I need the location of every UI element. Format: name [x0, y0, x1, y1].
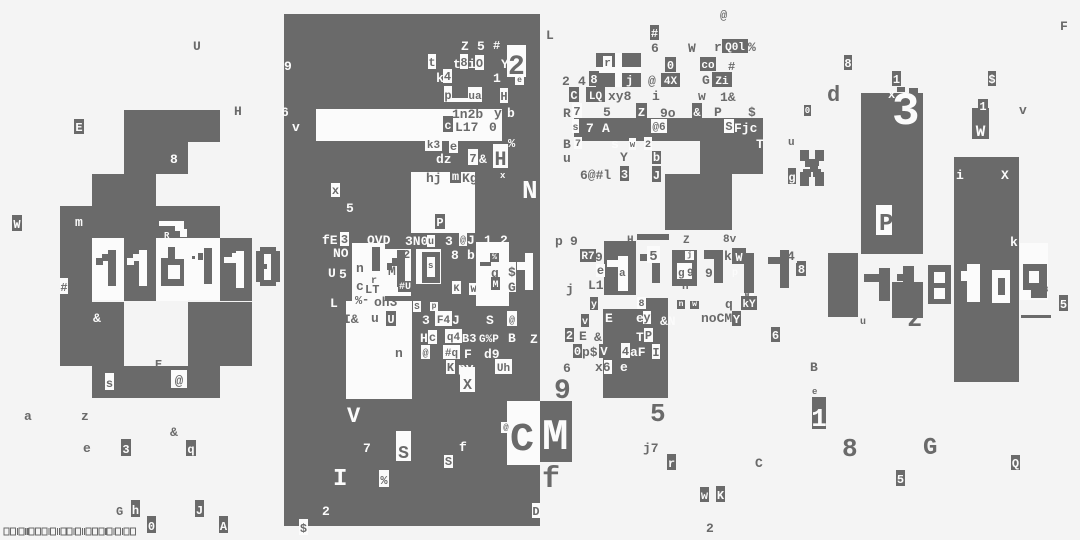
- svg-text:5: 5: [897, 473, 904, 487]
- svg-text:kY: kY: [742, 299, 756, 311]
- svg-text:W: W: [735, 251, 743, 265]
- svg-text:3: 3: [445, 234, 453, 249]
- svg-text:6: 6: [772, 329, 779, 343]
- svg-text:2: 2: [322, 504, 330, 519]
- svg-text:G: G: [923, 435, 937, 462]
- svg-text:x: x: [332, 184, 339, 198]
- svg-text:B: B: [810, 360, 818, 375]
- svg-text:E: E: [155, 358, 162, 372]
- svg-text:Z: Z: [530, 332, 538, 347]
- svg-text:Q: Q: [1012, 457, 1019, 471]
- svg-text:8: 8: [460, 56, 467, 70]
- svg-text:y: y: [494, 106, 502, 121]
- svg-text:g: g: [788, 171, 795, 185]
- svg-text:5: 5: [603, 105, 611, 120]
- svg-text:oh3: oh3: [374, 295, 398, 310]
- svg-text:&N: &N: [660, 314, 676, 329]
- svg-text:e: e: [83, 441, 91, 456]
- svg-text:2: 2: [706, 521, 714, 536]
- svg-text:7: 7: [363, 441, 371, 456]
- svg-text:d: d: [827, 83, 840, 108]
- svg-text:v: v: [1019, 103, 1027, 118]
- svg-text:T: T: [756, 137, 764, 152]
- svg-text:4X: 4X: [664, 76, 678, 88]
- svg-text:J: J: [653, 169, 660, 183]
- svg-text:X: X: [1001, 168, 1009, 183]
- svg-text:p: p: [555, 234, 563, 249]
- svg-text:A: A: [602, 121, 610, 136]
- svg-text:W: W: [976, 123, 986, 141]
- svg-text:p: p: [732, 268, 738, 279]
- svg-text:NO: NO: [333, 246, 349, 261]
- svg-text:V: V: [600, 345, 608, 359]
- svg-text:co: co: [701, 60, 715, 72]
- svg-text:0: 0: [489, 120, 497, 135]
- svg-text:8v: 8v: [723, 234, 737, 246]
- svg-text:F: F: [464, 347, 472, 362]
- svg-text:C: C: [510, 418, 534, 463]
- svg-text:1: 1: [811, 404, 827, 434]
- svg-text:U: U: [387, 313, 394, 327]
- svg-text:V: V: [347, 404, 361, 429]
- svg-text:q4: q4: [447, 332, 461, 344]
- svg-text:e: e: [620, 360, 628, 375]
- svg-text:dz: dz: [436, 152, 452, 167]
- svg-text:M: M: [492, 280, 498, 291]
- svg-text:e: e: [597, 264, 604, 278]
- svg-text:r: r: [604, 58, 611, 70]
- svg-text:H: H: [500, 90, 507, 104]
- svg-text:6@#l: 6@#l: [580, 168, 611, 183]
- svg-text:u: u: [788, 137, 795, 149]
- svg-text:q: q: [187, 443, 194, 457]
- svg-text:$: $: [508, 265, 516, 280]
- svg-text:5: 5: [1060, 298, 1067, 312]
- svg-text:z: z: [81, 409, 89, 424]
- svg-text:#: #: [60, 281, 67, 295]
- svg-text:Z: Z: [638, 106, 645, 120]
- svg-text:1: 1: [979, 100, 986, 114]
- svg-text:C: C: [570, 89, 577, 103]
- svg-text:9: 9: [595, 250, 603, 265]
- svg-text:@: @: [648, 74, 656, 89]
- svg-text:r: r: [714, 40, 722, 55]
- svg-text:O: O: [476, 57, 483, 71]
- svg-text:s: s: [428, 261, 433, 271]
- svg-text:9: 9: [570, 234, 578, 249]
- svg-text:%: %: [508, 137, 516, 151]
- svg-text:B: B: [563, 137, 571, 152]
- svg-text:u: u: [371, 311, 379, 326]
- svg-text:U: U: [328, 266, 336, 281]
- svg-text:G: G: [116, 505, 123, 519]
- svg-text:7: 7: [573, 105, 580, 119]
- svg-text:h: h: [132, 504, 139, 518]
- svg-text:#: #: [728, 60, 735, 74]
- svg-text:3: 3: [122, 443, 129, 457]
- svg-text:j: j: [687, 251, 692, 260]
- svg-text:L: L: [330, 296, 338, 311]
- svg-text:8: 8: [451, 248, 459, 263]
- svg-text:I: I: [333, 466, 347, 493]
- svg-text:s: s: [106, 377, 113, 391]
- svg-text:@6: @6: [652, 122, 665, 134]
- svg-text:w: w: [692, 300, 697, 309]
- svg-text:%: %: [492, 253, 497, 262]
- svg-text:2: 2: [562, 74, 570, 89]
- svg-text:m: m: [75, 215, 83, 230]
- svg-text:a: a: [619, 268, 626, 280]
- svg-text:1&: 1&: [720, 90, 736, 105]
- svg-text:F4: F4: [437, 315, 451, 327]
- svg-text:#q: #q: [445, 348, 458, 360]
- svg-text:v: v: [292, 120, 300, 135]
- svg-text:8: 8: [590, 73, 597, 87]
- svg-text:n: n: [679, 300, 684, 309]
- svg-text:A: A: [220, 520, 228, 534]
- svg-text:2: 2: [566, 329, 573, 343]
- svg-text:x: x: [500, 171, 506, 181]
- svg-text:E: E: [75, 121, 82, 135]
- svg-text:H: H: [420, 331, 428, 346]
- svg-text:8: 8: [842, 434, 858, 464]
- svg-text:e: e: [812, 387, 817, 397]
- svg-text:Y: Y: [733, 313, 741, 327]
- svg-text:4: 4: [444, 70, 451, 84]
- svg-text:q: q: [725, 297, 733, 312]
- svg-text:t: t: [428, 56, 435, 70]
- svg-text:0: 0: [805, 106, 810, 116]
- svg-text:c: c: [444, 119, 451, 133]
- svg-text:T: T: [636, 330, 644, 345]
- svg-text:5: 5: [346, 201, 354, 216]
- svg-text:w: w: [701, 489, 709, 503]
- svg-text:LQ: LQ: [589, 91, 603, 103]
- svg-text:s: s: [572, 123, 578, 134]
- svg-text:K: K: [453, 284, 459, 295]
- svg-text:n: n: [415, 172, 423, 187]
- svg-text:b: b: [467, 248, 475, 263]
- svg-text:U: U: [193, 39, 201, 54]
- svg-text:Zi: Zi: [715, 76, 729, 88]
- svg-text:@: @: [460, 235, 466, 247]
- svg-text:p: p: [444, 89, 451, 103]
- svg-text:R7: R7: [581, 251, 594, 263]
- svg-text:3: 3: [892, 86, 920, 138]
- svg-text:4: 4: [578, 74, 586, 89]
- svg-text:p$: p$: [582, 345, 598, 360]
- svg-text:u: u: [428, 237, 434, 248]
- svg-text:H: H: [494, 149, 506, 172]
- svg-text:C: C: [755, 456, 763, 471]
- svg-text:u: u: [860, 317, 866, 328]
- svg-text:0: 0: [667, 59, 674, 73]
- svg-text:7: 7: [586, 121, 594, 136]
- svg-text:v: v: [582, 317, 588, 328]
- svg-text:W: W: [470, 285, 476, 296]
- svg-text:i: i: [652, 89, 660, 104]
- svg-text:f: f: [542, 463, 560, 497]
- svg-text:Fjc: Fjc: [734, 121, 758, 136]
- svg-text:9: 9: [687, 268, 694, 280]
- svg-text:n: n: [682, 281, 689, 293]
- svg-text:8: 8: [170, 152, 178, 167]
- svg-text:noCM: noCM: [701, 311, 732, 326]
- svg-text:hj: hj: [426, 171, 442, 186]
- svg-text:5: 5: [649, 249, 657, 265]
- svg-text:9: 9: [284, 59, 292, 74]
- svg-text:L: L: [546, 28, 554, 43]
- svg-text:-: -: [362, 293, 369, 307]
- svg-text:P: P: [714, 105, 722, 120]
- svg-text:S: S: [486, 313, 494, 328]
- svg-text:y: y: [591, 300, 597, 311]
- svg-text:u: u: [563, 151, 571, 166]
- svg-text:0: 0: [148, 520, 155, 534]
- svg-text:@: @: [422, 348, 428, 360]
- svg-text:4: 4: [622, 345, 629, 359]
- svg-text:b: b: [653, 151, 660, 165]
- svg-text:6: 6: [563, 361, 571, 376]
- svg-text:y: y: [643, 311, 650, 325]
- svg-text:f: f: [459, 440, 467, 455]
- svg-text:Uh: Uh: [497, 363, 510, 375]
- svg-text:#: #: [493, 39, 500, 53]
- svg-text:5: 5: [650, 399, 666, 429]
- svg-text:X: X: [463, 377, 472, 394]
- svg-text:Q0l: Q0l: [725, 42, 745, 54]
- svg-text:m: m: [452, 170, 459, 184]
- svg-text:x6: x6: [595, 360, 611, 375]
- svg-text:$: $: [748, 105, 756, 120]
- svg-text:6: 6: [281, 105, 289, 120]
- svg-text:3: 3: [341, 233, 348, 247]
- svg-text:@: @: [503, 423, 509, 433]
- svg-text:k3: k3: [427, 140, 441, 152]
- svg-text:P: P: [879, 211, 893, 238]
- svg-text:w: w: [630, 140, 636, 150]
- svg-text:K: K: [447, 361, 455, 375]
- svg-text:J: J: [196, 504, 203, 518]
- svg-text:S: S: [725, 120, 732, 134]
- svg-text:j: j: [626, 74, 633, 88]
- svg-text:5: 5: [339, 267, 347, 282]
- svg-text:a: a: [24, 409, 32, 424]
- svg-text:z: z: [907, 304, 923, 334]
- svg-text:J: J: [452, 313, 460, 328]
- svg-text:S: S: [398, 444, 409, 464]
- svg-text:N: N: [522, 176, 538, 206]
- svg-text:r: r: [668, 457, 675, 471]
- svg-text:b: b: [507, 106, 515, 121]
- svg-text:2: 2: [403, 248, 410, 262]
- svg-text:w: w: [698, 89, 706, 104]
- svg-text:j: j: [566, 282, 574, 297]
- svg-text:2: 2: [645, 140, 651, 151]
- svg-text:1: 1: [493, 71, 501, 86]
- svg-text:P: P: [645, 329, 652, 343]
- svg-text:B: B: [508, 331, 516, 346]
- svg-text:F: F: [1060, 19, 1068, 34]
- svg-text:&: &: [170, 425, 178, 440]
- svg-text:7: 7: [575, 139, 581, 150]
- svg-text:k: k: [436, 71, 444, 86]
- svg-text:&: &: [93, 311, 101, 326]
- svg-text:8: 8: [638, 299, 644, 310]
- svg-text:G%P: G%P: [479, 334, 499, 346]
- svg-text:#: #: [651, 27, 658, 41]
- svg-text:3: 3: [422, 313, 430, 328]
- svg-text:I: I: [652, 346, 659, 360]
- svg-text:g: g: [678, 268, 685, 280]
- svg-text:@: @: [720, 9, 727, 23]
- svg-text:G: G: [702, 73, 710, 88]
- svg-text:W: W: [13, 218, 21, 232]
- svg-text:L1: L1: [588, 278, 604, 293]
- svg-text:L17: L17: [455, 120, 478, 135]
- svg-text:n: n: [356, 261, 364, 276]
- svg-text:3N0: 3N0: [405, 234, 429, 249]
- svg-text:E: E: [579, 329, 587, 344]
- svg-text:&: &: [479, 152, 487, 167]
- svg-text:j7: j7: [643, 441, 659, 456]
- svg-text:ua: ua: [468, 91, 482, 103]
- svg-text:p: p: [432, 302, 437, 311]
- svg-text:&: &: [594, 330, 602, 345]
- svg-text:G: G: [508, 280, 516, 295]
- svg-text:%: %: [748, 40, 756, 55]
- svg-text:s: s: [611, 137, 619, 152]
- svg-text:c: c: [429, 331, 436, 345]
- svg-text:5: 5: [477, 39, 485, 54]
- svg-text:i: i: [468, 57, 476, 72]
- svg-text:@: @: [509, 315, 515, 327]
- svg-text:8: 8: [844, 57, 851, 71]
- svg-text:K: K: [717, 489, 725, 503]
- svg-text:Z: Z: [461, 39, 469, 54]
- svg-text:3: 3: [1043, 285, 1048, 295]
- svg-text:9o: 9o: [660, 106, 676, 121]
- svg-text:$: $: [988, 73, 995, 87]
- svg-text:Kg: Kg: [462, 171, 478, 186]
- svg-text:I&: I&: [343, 312, 359, 327]
- svg-text:Z: Z: [683, 235, 690, 247]
- svg-text:7: 7: [469, 152, 476, 166]
- svg-text:J: J: [467, 233, 475, 248]
- svg-text:aF: aF: [630, 345, 646, 360]
- svg-text:$: $: [300, 522, 307, 536]
- svg-text:x: x: [888, 88, 895, 102]
- svg-text:D: D: [532, 505, 539, 519]
- svg-text:9: 9: [554, 376, 571, 407]
- svg-text:M: M: [542, 413, 568, 463]
- svg-text:8: 8: [798, 263, 805, 277]
- svg-text:4: 4: [787, 249, 795, 264]
- svg-text:0: 0: [574, 345, 581, 359]
- svg-text:H: H: [234, 104, 242, 119]
- svg-text:i: i: [956, 168, 964, 183]
- svg-text:9: 9: [705, 266, 713, 281]
- svg-text:B3: B3: [462, 332, 476, 346]
- svg-text:e: e: [517, 76, 522, 85]
- svg-text:&: &: [693, 106, 701, 120]
- svg-text:W: W: [688, 41, 696, 56]
- svg-text:3: 3: [621, 168, 628, 182]
- svg-text:E: E: [605, 311, 613, 326]
- svg-text:R: R: [563, 106, 571, 121]
- svg-text:k: k: [1010, 235, 1018, 250]
- svg-text:S: S: [445, 455, 452, 469]
- svg-text:6: 6: [651, 41, 659, 56]
- svg-text:Y: Y: [620, 150, 628, 165]
- svg-text:k: k: [724, 249, 732, 264]
- svg-text:S: S: [414, 302, 420, 312]
- svg-text:P: P: [436, 216, 443, 230]
- svg-text:c: c: [356, 279, 364, 294]
- svg-text:@: @: [175, 374, 184, 390]
- svg-text:1: 1: [893, 73, 900, 87]
- svg-text:%: %: [380, 474, 388, 488]
- svg-text:n: n: [395, 346, 403, 361]
- svg-text:M: M: [388, 264, 396, 279]
- svg-text:#U: #U: [399, 282, 411, 293]
- svg-text:xy8: xy8: [608, 89, 632, 104]
